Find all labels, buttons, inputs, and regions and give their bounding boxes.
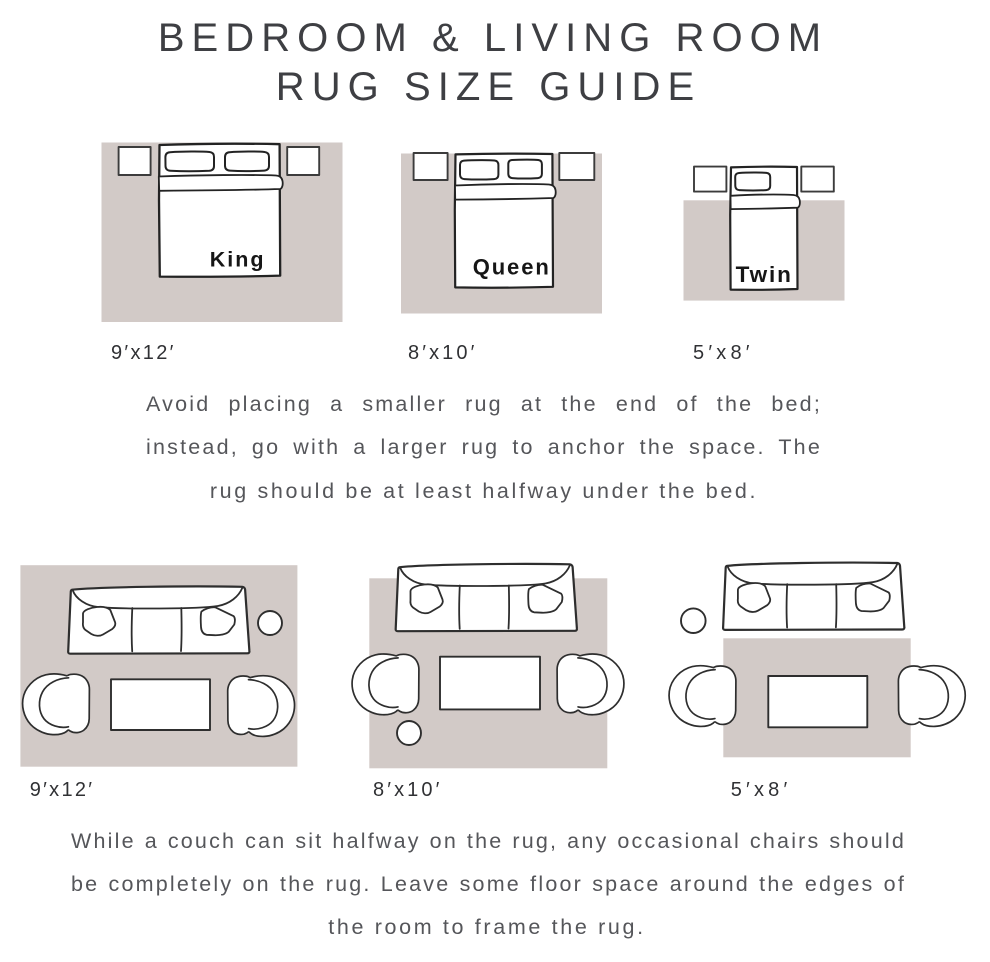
svg-text:Queen: Queen bbox=[473, 255, 551, 280]
svg-text:King: King bbox=[210, 247, 266, 271]
svg-text:Twin: Twin bbox=[736, 262, 793, 287]
